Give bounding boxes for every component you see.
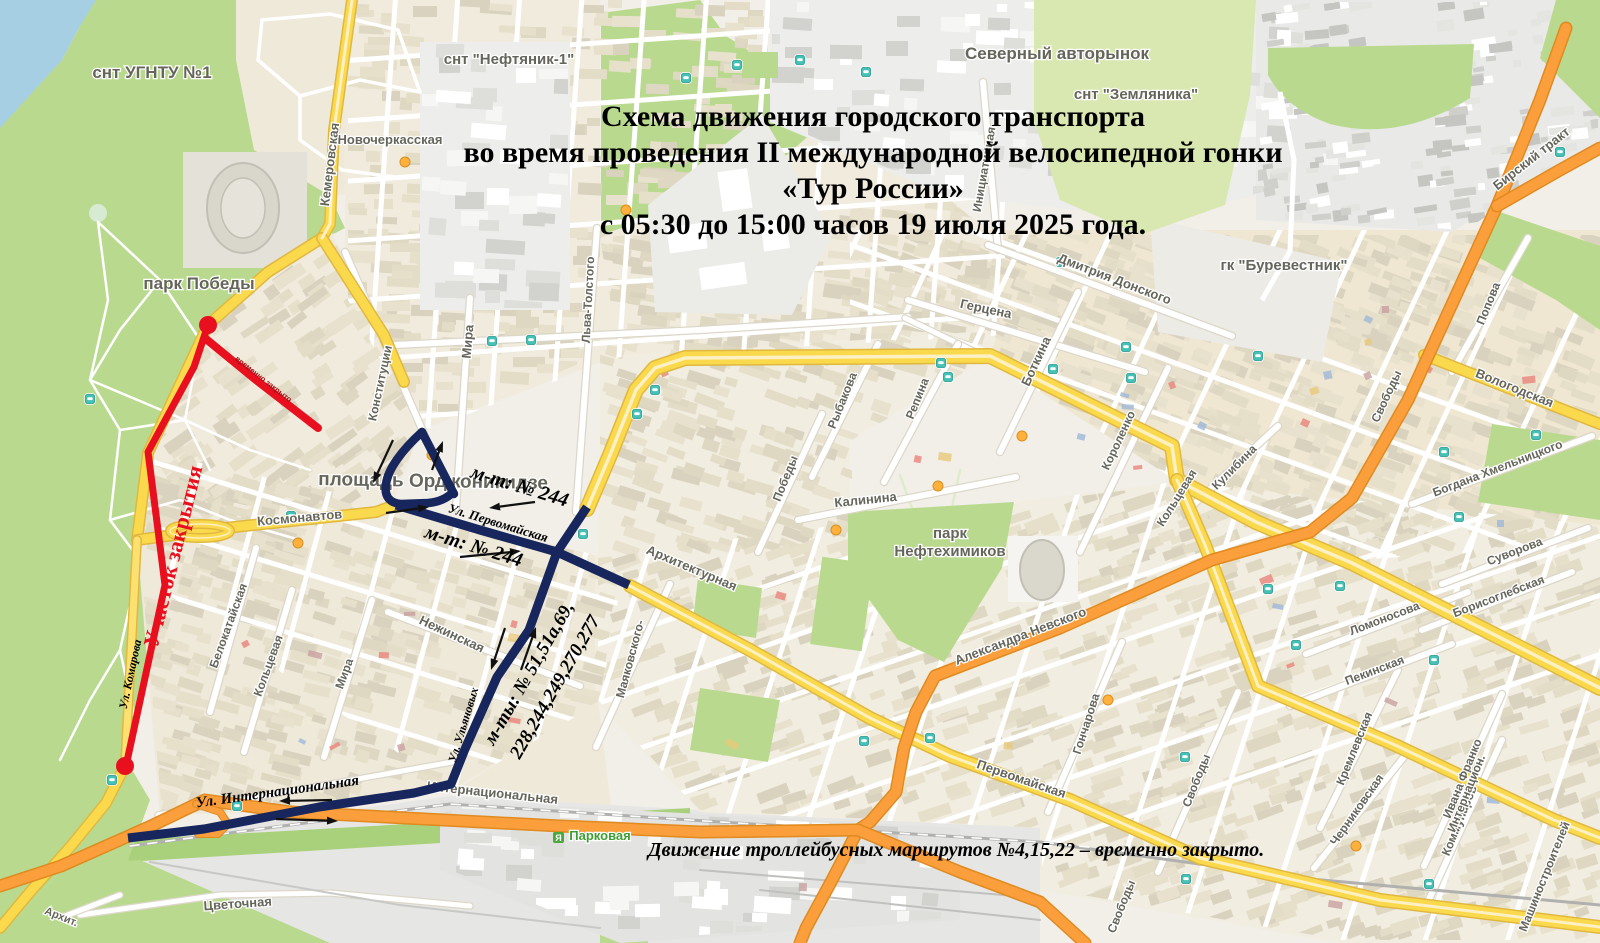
svg-text:Северный авторынок: Северный авторынок (965, 44, 1149, 63)
svg-text:«Тур России»: «Тур России» (782, 172, 963, 205)
svg-text:Схема движения городского тран: Схема движения городского транспорта (601, 100, 1145, 133)
svg-text:парк Победы: парк Победы (143, 274, 254, 293)
svg-text:Парковая: Парковая (569, 828, 630, 843)
svg-text:Я: Я (555, 833, 561, 843)
svg-text:Новочеркасская: Новочеркасская (337, 132, 442, 147)
svg-text:Движение троллейбусных маршрут: Движение троллейбусных маршрутов №4,15,2… (646, 839, 1264, 861)
svg-text:снт "Нефтяник-1": снт "Нефтяник-1" (444, 51, 574, 68)
svg-text:Нефтехимиков: Нефтехимиков (894, 543, 1005, 560)
svg-text:с 05:30 до 15:00 часов 19 июля: с 05:30 до 15:00 часов 19 июля 2025 года… (600, 208, 1146, 241)
svg-text:во время проведения II междуна: во время проведения II международной вел… (463, 136, 1282, 169)
svg-text:Мира: Мира (459, 323, 477, 359)
svg-text:гк "Буревестник": гк "Буревестник" (1220, 257, 1347, 274)
svg-text:снт УГНТУ №1: снт УГНТУ №1 (92, 63, 211, 82)
svg-text:парк: парк (933, 525, 968, 542)
